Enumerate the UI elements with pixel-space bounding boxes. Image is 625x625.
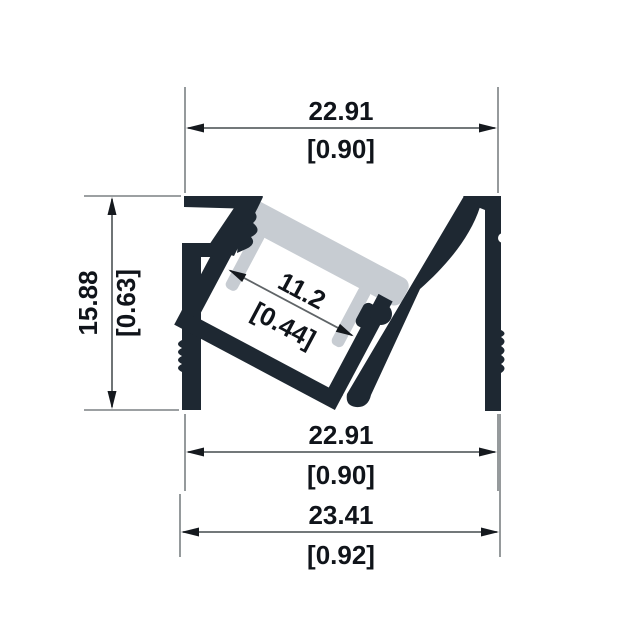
profile-drawing: 22.91 [0.90] 15.88 [0.63] 11.2 [0.44] 22… xyxy=(0,0,625,625)
leg-channel-junction xyxy=(370,303,392,325)
dim-top-width-inch: [0.90] xyxy=(307,134,375,164)
right-wall-notch xyxy=(498,233,508,243)
dim-bottom-overall-inch: [0.92] xyxy=(307,540,375,570)
dim-left-height-mm: 15.88 xyxy=(73,270,103,335)
dim-bottom-overall-mm: 23.41 xyxy=(308,500,373,530)
dim-bottom-inner-mm: 22.91 xyxy=(308,420,373,450)
drawing-canvas: 22.91 [0.90] 15.88 [0.63] 11.2 [0.44] 22… xyxy=(0,0,625,625)
dim-left-height-inch: [0.63] xyxy=(111,269,141,337)
dim-top-width-mm: 22.91 xyxy=(308,96,373,126)
dim-bottom-inner-inch: [0.90] xyxy=(307,460,375,490)
